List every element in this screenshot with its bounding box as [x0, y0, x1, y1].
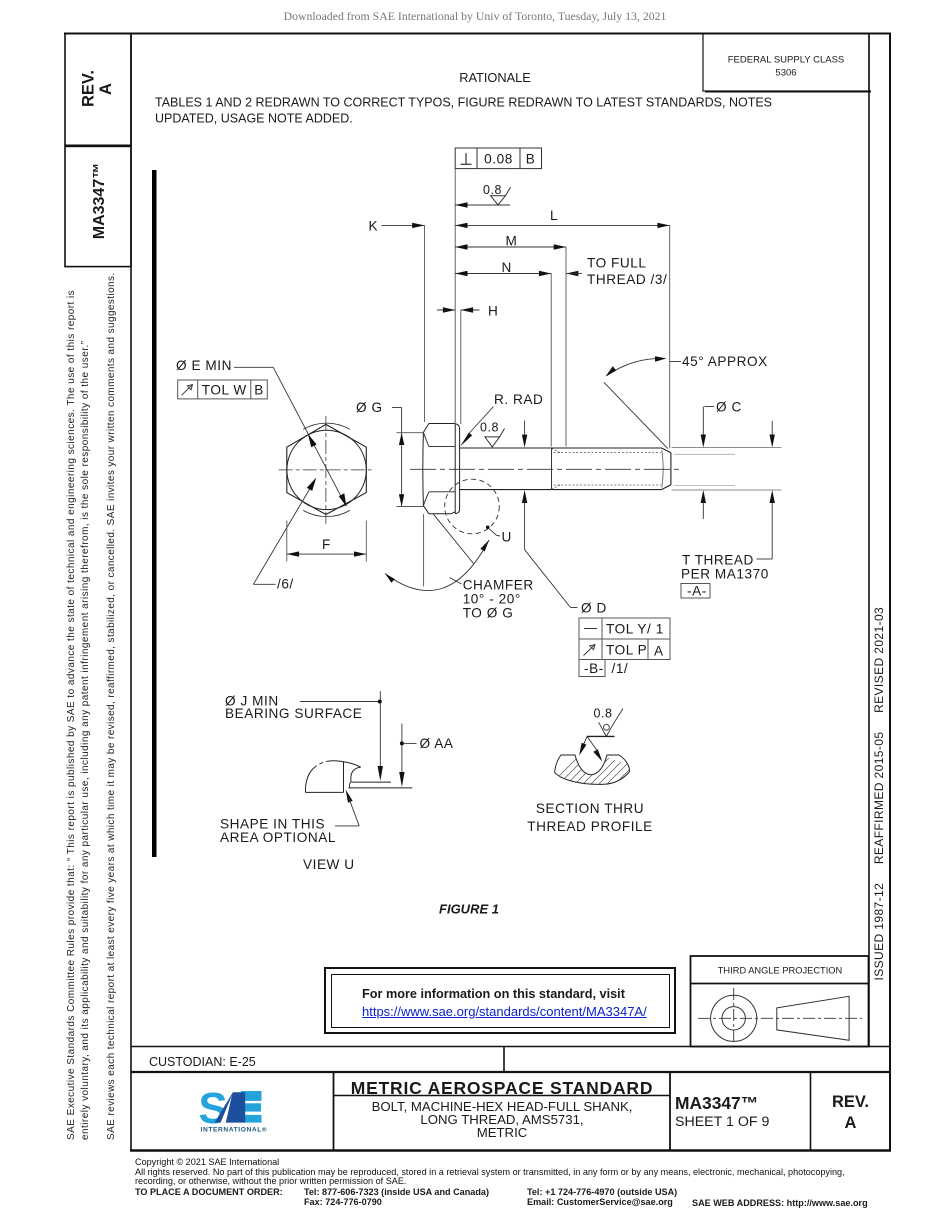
svg-text:TOL W: TOL W — [202, 382, 247, 397]
svg-text:BEARING SURFACE: BEARING SURFACE — [225, 706, 362, 721]
svg-text:TOL Y/ 1: TOL Y/ 1 — [606, 622, 664, 637]
svg-text:VIEW U: VIEW U — [303, 857, 355, 872]
svg-text:TO FULL: TO FULL — [587, 256, 647, 271]
svg-text:10° - 20°: 10° - 20° — [463, 592, 521, 607]
svg-text:AREA OPTIONAL: AREA OPTIONAL — [220, 830, 336, 845]
svg-text:CHAMFER: CHAMFER — [463, 578, 534, 593]
svg-text:INTERNATIONAL®: INTERNATIONAL® — [201, 1126, 268, 1134]
svg-text:0.8: 0.8 — [594, 706, 613, 720]
svg-text:A: A — [654, 644, 664, 659]
svg-text:T THREAD: T THREAD — [682, 553, 754, 568]
svg-text:Ø E MIN: Ø E MIN — [176, 358, 232, 373]
svg-text:THREAD PROFILE: THREAD PROFILE — [527, 819, 653, 834]
svg-text:K: K — [369, 219, 379, 234]
svg-text:Ø AA: Ø AA — [420, 736, 454, 751]
svg-text:/6/: /6/ — [277, 577, 294, 592]
svg-text:TO Ø G: TO Ø G — [463, 606, 514, 621]
svg-text:Ø G: Ø G — [356, 400, 383, 415]
svg-text:A: A — [97, 83, 115, 95]
svg-text:UPDATED, USAGE NOTE ADDED.: UPDATED, USAGE NOTE ADDED. — [155, 112, 353, 126]
svg-text:TABLES 1 AND 2 REDRAWN TO CORR: TABLES 1 AND 2 REDRAWN TO CORRECT TYPOS,… — [155, 96, 772, 110]
svg-text:45° APPROX: 45° APPROX — [682, 354, 768, 369]
svg-text:H: H — [488, 304, 498, 319]
svg-text:0.8: 0.8 — [483, 183, 502, 197]
svg-text:M: M — [506, 234, 518, 249]
svg-text:Ø C: Ø C — [716, 400, 742, 415]
svg-text:THREAD /3/: THREAD /3/ — [587, 272, 667, 287]
svg-text:5306: 5306 — [775, 68, 796, 79]
svg-text:THIRD ANGLE PROJECTION: THIRD ANGLE PROJECTION — [718, 966, 843, 976]
svg-text:Ø D: Ø D — [581, 601, 607, 616]
svg-text:PER MA1370: PER MA1370 — [681, 567, 769, 582]
svg-text:ISSUED 1987-12 REAFFIRMED: ISSUED 1987-12 REAFFIRMED 2015-05 REVISE… — [872, 607, 886, 981]
svg-text:0.8: 0.8 — [480, 420, 499, 434]
svg-text:B: B — [254, 382, 264, 397]
svg-text:SECTION THRU: SECTION THRU — [536, 801, 644, 816]
svg-text:L: L — [550, 208, 558, 223]
svg-text:FEDERAL SUPPLY CLASS: FEDERAL SUPPLY CLASS — [728, 55, 845, 66]
svg-text:RATIONALE: RATIONALE — [459, 70, 531, 85]
svg-text:-A-: -A- — [687, 584, 707, 599]
svg-text:U: U — [502, 530, 512, 545]
svg-text:/1/: /1/ — [612, 661, 629, 676]
svg-text:TOL P: TOL P — [606, 643, 647, 658]
svg-text:REV.: REV. — [80, 70, 98, 107]
svg-text:MA3347™: MA3347™ — [91, 163, 108, 239]
svg-text:F: F — [322, 537, 331, 552]
svg-text:R. RAD: R. RAD — [494, 392, 543, 407]
svg-text:N: N — [502, 260, 512, 275]
svg-text:FIGURE 1: FIGURE 1 — [439, 902, 499, 917]
svg-text:0.08: 0.08 — [484, 151, 513, 166]
svg-text:B: B — [526, 151, 536, 166]
svg-text:-B-: -B- — [584, 661, 604, 676]
